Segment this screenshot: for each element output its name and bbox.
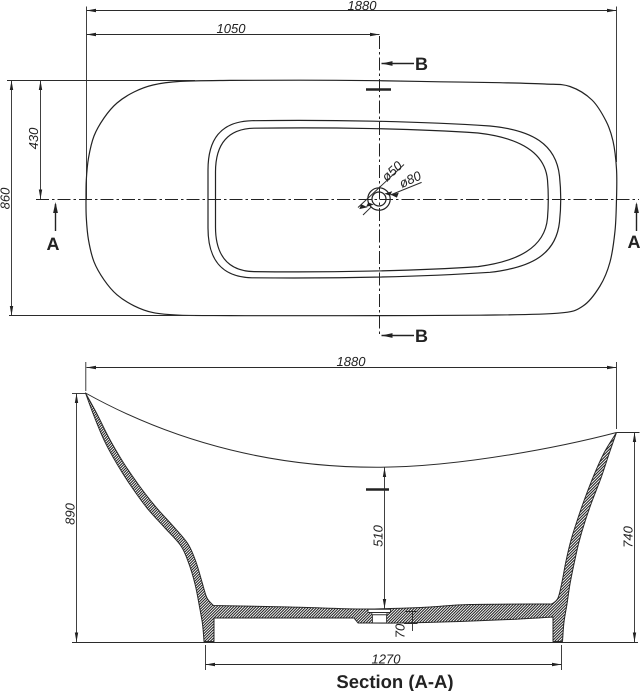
svg-text:70: 70 [393,623,408,638]
svg-text:1880: 1880 [348,0,378,13]
svg-text:740: 740 [621,525,636,547]
svg-text:A: A [628,232,641,252]
svg-text:1270: 1270 [372,652,402,667]
svg-text:1880: 1880 [337,354,367,369]
svg-text:1050: 1050 [217,21,247,36]
svg-text:510: 510 [371,524,386,546]
svg-text:430: 430 [26,127,41,149]
svg-text:A: A [47,234,60,254]
svg-text:B: B [415,54,428,74]
svg-text:Section (A-A): Section (A-A) [336,671,453,691]
svg-text:890: 890 [63,502,78,524]
svg-text:860: 860 [0,187,13,209]
svg-text:B: B [415,326,428,346]
